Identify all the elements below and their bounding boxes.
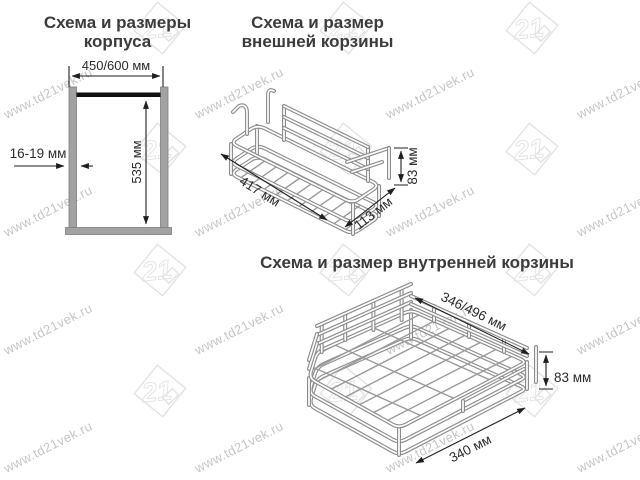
- inner-basket-diagram: 346/496 мм 83 мм 340 мм: [185, 199, 625, 465]
- case-title-line1: Схема и размеры: [20, 13, 215, 32]
- case-rail-bar: [77, 93, 161, 98]
- diagram-page: www.td21vek.ruwww.td21vek.ruwww.td21vek.…: [0, 0, 640, 480]
- outer-height-dimension: 83 мм: [394, 147, 420, 185]
- case-height-dimension: 535 мм: [129, 101, 146, 224]
- case-title: Схема и размеры корпуса: [20, 13, 215, 51]
- case-width-dim-label: 450/600 мм: [82, 58, 151, 73]
- outer-basket-title-line1: Схема и размер: [225, 13, 410, 32]
- outer-height-dim-label: 83 мм: [405, 147, 420, 184]
- case-height-dim-label: 535 мм: [129, 140, 144, 183]
- case-thickness-dimension: 16-19 мм: [10, 146, 93, 166]
- case-title-line2: корпуса: [20, 32, 215, 51]
- inner-depth-dim-label: 340 мм: [447, 432, 494, 466]
- case-width-dimension: 450/600 мм: [69, 58, 163, 87]
- case-bottom-wall: [66, 228, 172, 235]
- case-thickness-dim-label: 16-19 мм: [10, 146, 67, 161]
- outer-basket-diagram: 417 мм 113 мм 83 мм: [221, 90, 420, 234]
- inner-height-dim-label: 83 мм: [554, 370, 591, 385]
- technical-drawing: 450/600 мм 535 мм 16-19 мм: [0, 0, 640, 480]
- outer-basket-title: Схема и размер внешней корзины: [225, 13, 410, 51]
- inner-height-dimension: 83 мм: [539, 352, 591, 389]
- case-right-wall: [161, 87, 169, 234]
- outer-basket-title-line2: внешней корзины: [225, 32, 410, 51]
- case-left-wall: [69, 87, 77, 234]
- case-diagram: 450/600 мм 535 мм 16-19 мм: [10, 58, 172, 235]
- inner-basket-title: Схема и размер внутренней корзины: [252, 253, 582, 272]
